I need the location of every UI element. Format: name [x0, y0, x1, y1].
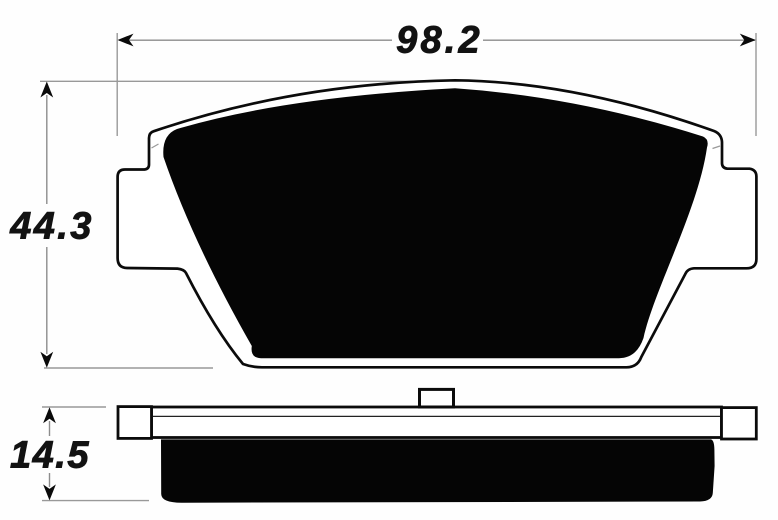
svg-text:98.2: 98.2 [396, 20, 483, 62]
svg-text:14.5: 14.5 [10, 435, 90, 477]
svg-text:44.3: 44.3 [9, 206, 94, 248]
